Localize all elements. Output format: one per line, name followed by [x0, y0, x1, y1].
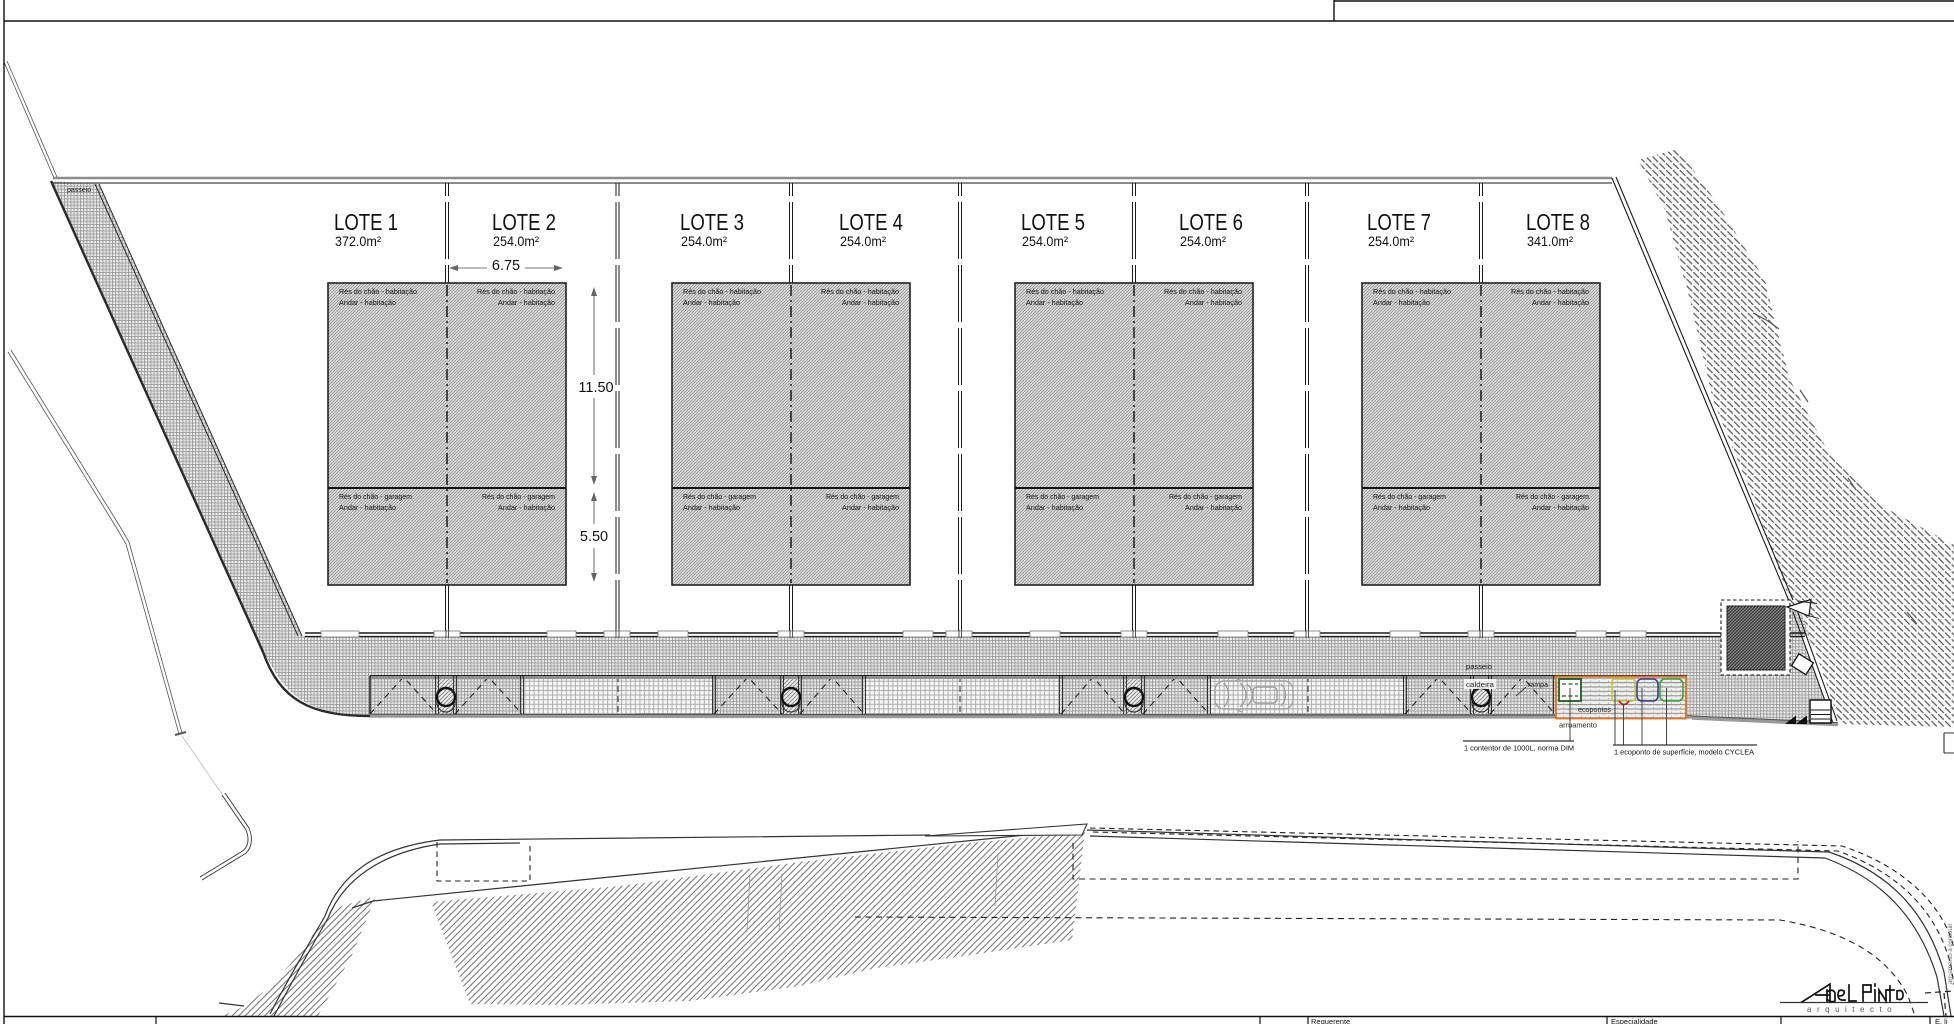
svg-text:arquitecto: arquitecto — [1807, 1005, 1897, 1014]
svg-text:Requerente: Requerente — [1311, 1017, 1350, 1024]
svg-text:E. li: E. li — [1935, 1017, 1948, 1024]
svg-text:Especialidade: Especialidade — [1611, 1017, 1658, 1024]
svg-text:arruamento a construir: arruamento a construir — [1948, 924, 1954, 984]
